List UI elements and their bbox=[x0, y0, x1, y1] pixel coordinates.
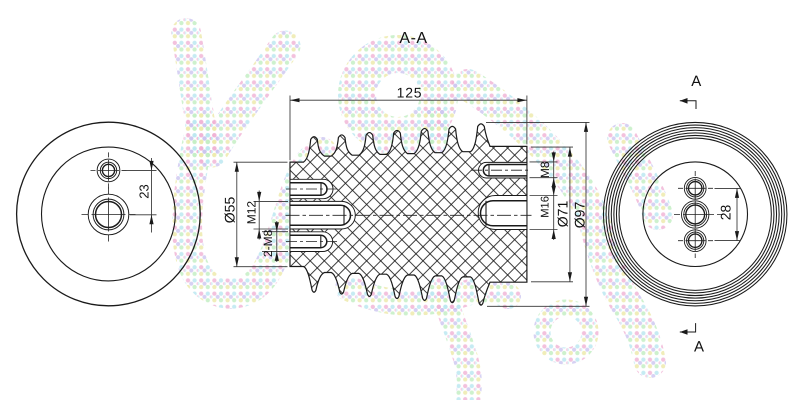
svg-text:125: 125 bbox=[397, 85, 423, 101]
svg-text:A: A bbox=[694, 339, 704, 356]
svg-text:M12: M12 bbox=[245, 201, 259, 225]
svg-text:2-M8: 2-M8 bbox=[261, 229, 275, 257]
svg-text:Ø55: Ø55 bbox=[221, 197, 237, 224]
svg-text:28: 28 bbox=[717, 205, 733, 221]
svg-text:Ø71: Ø71 bbox=[555, 201, 571, 228]
svg-text:Ø97: Ø97 bbox=[571, 202, 587, 229]
svg-text:A-A: A-A bbox=[399, 30, 427, 47]
svg-text:A: A bbox=[691, 73, 701, 90]
svg-text:23: 23 bbox=[136, 184, 151, 198]
svg-text:M16: M16 bbox=[540, 196, 552, 218]
svg-text:M8: M8 bbox=[538, 161, 552, 178]
